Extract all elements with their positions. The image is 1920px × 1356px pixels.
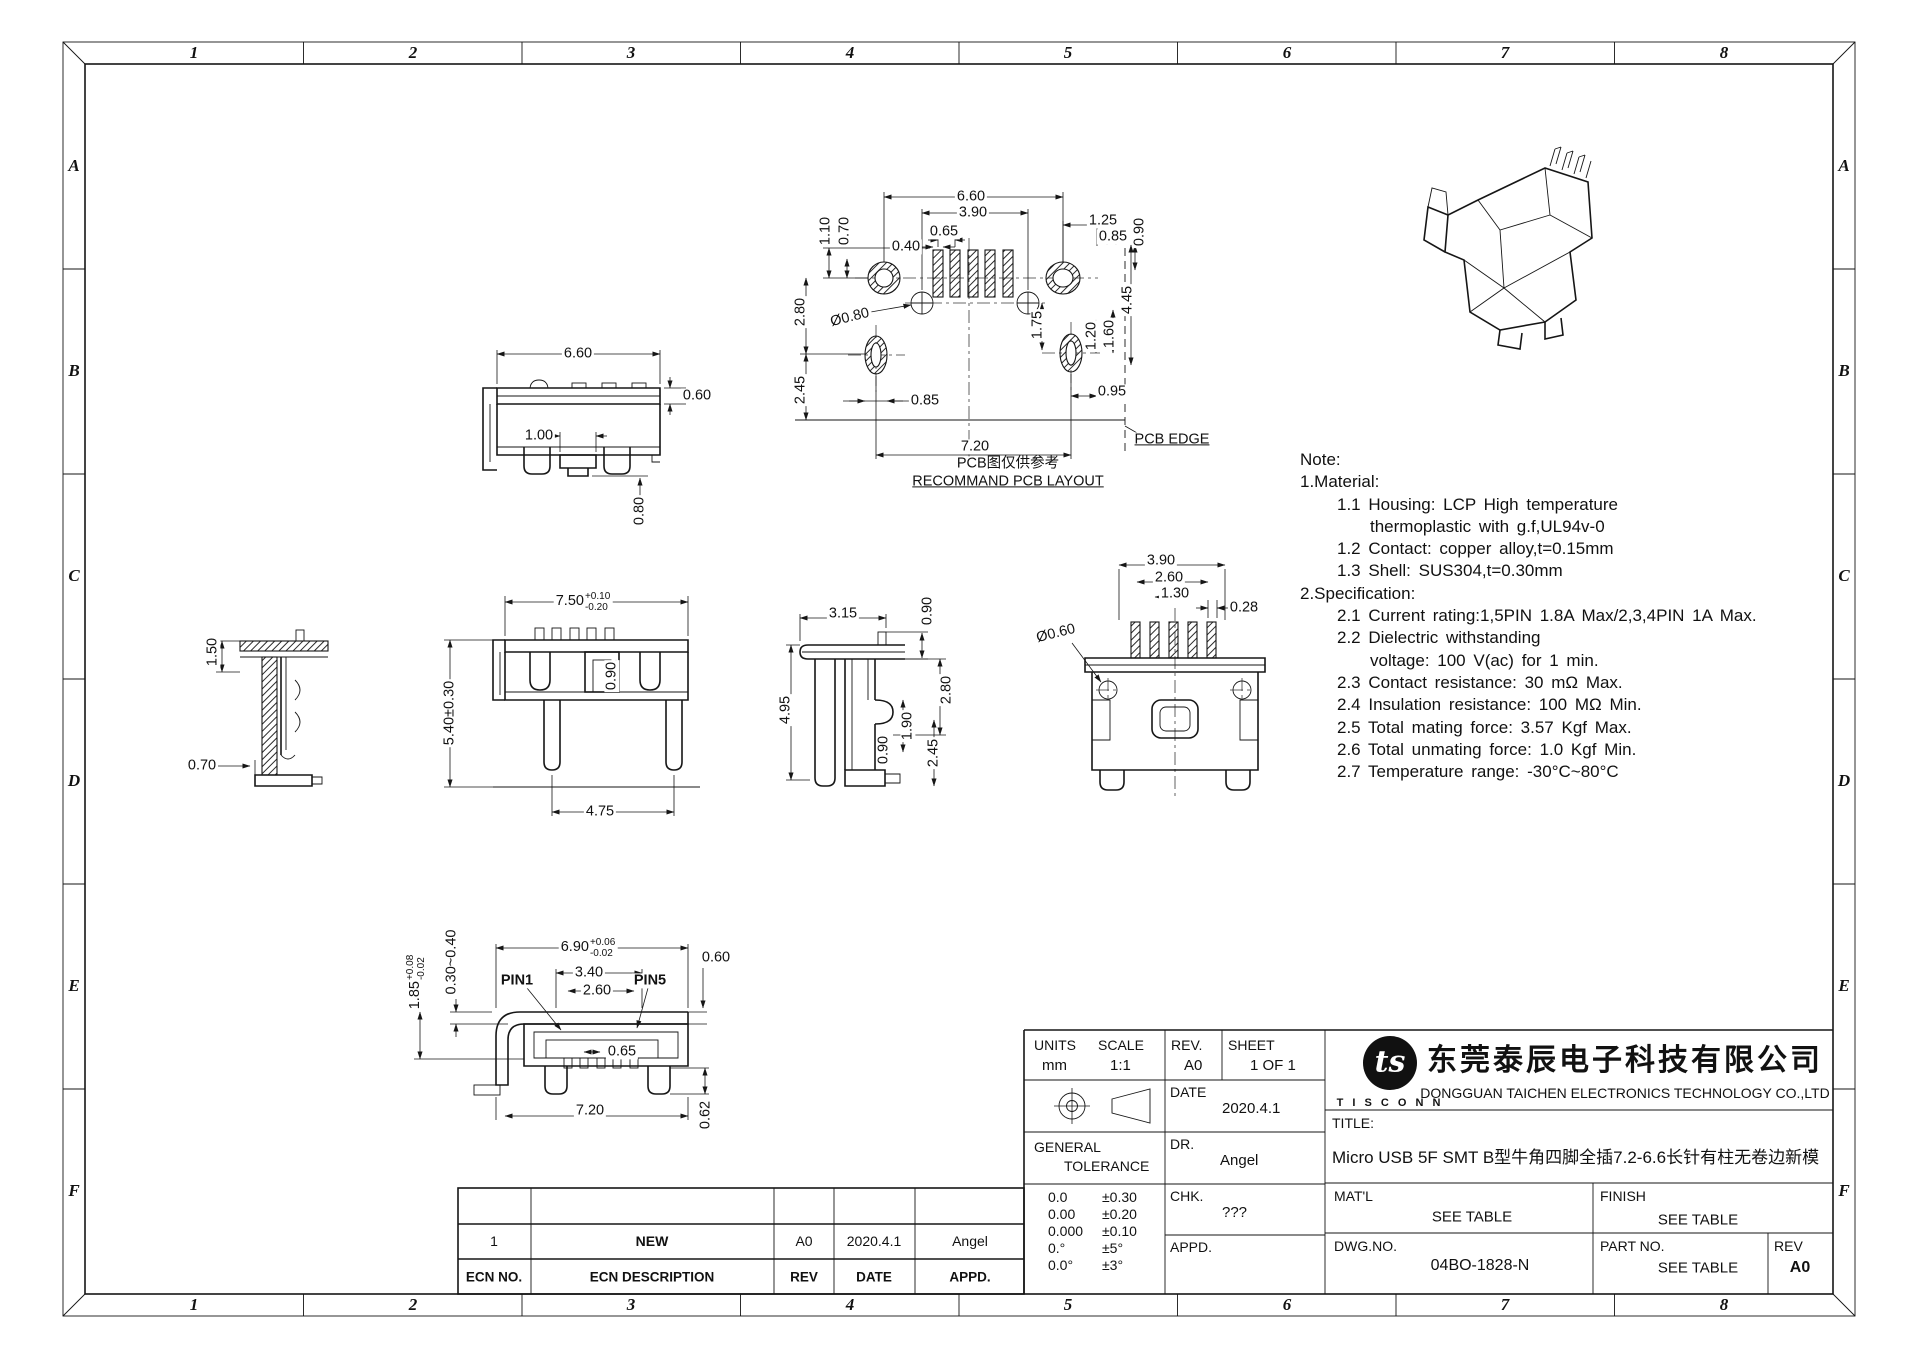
note-line: 1.2 Contact: copper alloy,t=0.15mm [1337,538,1757,560]
ecn-header: DATE [856,1270,892,1285]
dim-label: 3.15 [827,606,859,621]
dim-label: 7.20 [574,1103,606,1118]
note-line: 1.Material: [1300,471,1757,493]
dim-label: 3.40 [573,965,605,980]
pcb-edge-label: PCB EDGE [1133,432,1212,447]
tolerance-value: 0.00 [1048,1206,1075,1222]
title-label: TITLE: [1332,1115,1374,1131]
zone-row: E [68,976,79,996]
view-side-left [216,630,328,786]
view-side-mid [786,614,946,786]
zone-row: A [68,156,79,176]
note-line: 2.3 Contact resistance: 30 mΩ Max. [1337,672,1757,694]
dim-label: 0.70 [186,758,218,773]
ecn-header: ECN DESCRIPTION [590,1270,715,1285]
dim-label: 4.75 [584,804,616,819]
dim-label: 0.90 [920,595,935,627]
ecn-header: REV [790,1270,818,1285]
dim-label: 1.60 [1102,318,1117,350]
general-tolerance-label: GENERAL [1034,1139,1101,1155]
note-line: 2.5 Total mating force: 3.57 Kgf Max. [1337,717,1757,739]
dim-label: 0.90 [604,660,619,692]
ecn-header: APPD. [949,1270,990,1285]
dim-label: 0.65 [928,224,960,239]
tolerance-value: ±0.30 [1102,1189,1137,1205]
ecn-cell: 1 [490,1233,498,1249]
zone-col: 8 [1720,1295,1729,1315]
note-line: 2.2 Dielectric withstanding [1337,627,1757,649]
zone-col: 7 [1501,43,1510,63]
note-line: 2.1 Current rating:1,5PIN 1.8A Max/2,3,4… [1337,605,1757,627]
zone-col: 6 [1283,43,1292,63]
dim-label: 2.60 [581,983,613,998]
zone-row: D [1838,771,1850,791]
ecn-cell: NEW [636,1233,669,1249]
dwg-no-value: 04BO-1828-N [1431,1257,1530,1275]
zone-col: 2 [409,1295,418,1315]
dim-label: 1.10 [818,215,833,247]
note-line: 1.3 Shell: SUS304,t=0.30mm [1337,560,1757,582]
rev-value: A0 [1184,1057,1202,1074]
dim-label: 0.60 [681,388,713,403]
date-value: 2020.4.1 [1222,1100,1280,1117]
sheet-label: SHEET [1228,1037,1275,1053]
zone-row: C [68,566,79,586]
part-no-value: SEE TABLE [1658,1260,1738,1277]
company-name-en: DONGGUAN TAICHEN ELECTRONICS TECHNOLOGY … [1420,1085,1829,1101]
zone-col: 7 [1501,1295,1510,1315]
tolerance-value: 0.0 [1048,1189,1067,1205]
dim-label: 1.30 [1159,586,1191,601]
dim-label: 6.60 [562,346,594,361]
zone-col: 3 [627,43,636,63]
note-line: thermoplastic with g.f,UL94v-0 [1370,516,1757,538]
dwg-no-label: DWG.NO. [1334,1238,1397,1254]
dim-label: 1.50 [205,636,220,668]
matl-label: MAT'L [1334,1188,1373,1204]
company-name-cn: 东莞泰辰电子科技有限公司 [1427,1035,1823,1079]
units-label: UNITS [1034,1037,1076,1053]
tolerance-value: ±5° [1102,1240,1123,1256]
dim-label: 6.60 [955,189,987,204]
zone-col: 8 [1720,43,1729,63]
dim-label: 0.90 [1132,216,1147,248]
pin5-label: PIN5 [632,973,668,988]
dim-label: 0.95 [1096,384,1128,399]
dim-label: 0.30~0.40 [444,928,459,997]
view-front-mid [444,596,700,816]
zone-row: B [1838,361,1849,381]
dim-label: 2.80 [793,296,808,328]
units-value: mm [1042,1057,1067,1074]
dim-label: 1.75 [1030,309,1045,341]
zone-col: 2 [409,43,418,63]
dim-label: 0.70 [837,215,852,247]
ecn-header: ECN NO. [466,1270,522,1285]
drawing-title: Micro USB 5F SMT B型牛角四脚全插7.2-6.6长针有柱无卷边新… [1332,1143,1819,1168]
notes-block: Note: 1.Material: 1.1 Housing: LCP High … [1300,449,1757,783]
dr-label: DR. [1170,1136,1194,1152]
dim-label: 0.65 [606,1044,638,1059]
scale-label: SCALE [1098,1037,1144,1053]
zone-col: 4 [846,1295,855,1315]
finish-value: SEE TABLE [1658,1212,1738,1229]
scale-value: 1:1 [1110,1057,1131,1074]
dim-label: 1.25 [1087,213,1119,228]
rev-label: REV. [1171,1037,1202,1053]
note-line: voltage: 100 V(ac) for 1 min. [1370,650,1757,672]
dim-label: 7.20 [959,439,991,454]
zone-row: F [1838,1181,1849,1201]
dim-label: 2.60 [1153,570,1185,585]
dim-label: 4.95 [778,694,793,726]
tolerance-value: ±0.10 [1102,1223,1137,1239]
dim-label: 0.85 [1097,229,1129,244]
zone-col: 3 [627,1295,636,1315]
zone-col: 6 [1283,1295,1292,1315]
dim-label: 0.62 [698,1099,713,1131]
zone-row: A [1838,156,1849,176]
view-isometric [1424,147,1592,349]
dim-label: 1.85+0.08-0.02 [405,953,427,1012]
dim-label: 1.90 [900,710,915,742]
ecn-cell: 2020.4.1 [847,1233,902,1249]
dim-label: 1.00 [523,428,555,443]
rev2-value: A0 [1790,1259,1810,1277]
pin1-label: PIN1 [499,973,535,988]
logo-ts-monogram: ts [1375,1045,1406,1080]
zone-col: 4 [846,43,855,63]
dim-label: 4.45 [1120,284,1135,316]
ecn-cell: Angel [952,1233,988,1249]
ecn-table-lines [458,1188,1024,1294]
note-line: 2.4 Insulation resistance: 100 MΩ Min. [1337,694,1757,716]
dr-value: Angel [1220,1152,1258,1169]
part-no-label: PART NO. [1600,1238,1665,1254]
tolerance-value: 0.000 [1048,1223,1083,1239]
tolerance-value: ±3° [1102,1257,1123,1273]
dim-label: 2.45 [926,737,941,769]
dim-label: 0.60 [700,950,732,965]
dim-label: 0.85 [909,393,941,408]
zone-col: 5 [1064,43,1073,63]
note-line: 2.6 Total unmating force: 1.0 Kgf Min. [1337,739,1757,761]
zone-col: 5 [1064,1295,1073,1315]
tolerance-value: 0.0° [1048,1257,1073,1273]
zone-row: C [1838,566,1849,586]
dim-label: 3.90 [1145,553,1177,568]
appd-label: APPD. [1170,1239,1212,1255]
finish-label: FINISH [1600,1188,1646,1204]
dim-label: 0.80 [632,495,647,527]
rev2-label: REV [1774,1238,1803,1254]
date-label: DATE [1170,1084,1206,1100]
sheet-value: 1 OF 1 [1250,1057,1296,1074]
view-front-top [483,350,686,498]
general-tolerance-label: TOLERANCE [1064,1158,1149,1174]
note-line: 2.7 Temperature range: -30°C~80°C [1337,761,1757,783]
chk-value: ??? [1222,1204,1247,1221]
dim-label: 6.90+0.06-0.02 [559,937,618,959]
ecn-cell: A0 [795,1233,812,1249]
dim-label: 0.28 [1228,600,1260,615]
dim-label: 1.20 [1084,320,1099,352]
chk-label: CHK. [1170,1188,1203,1204]
dim-label: 2.45 [793,374,808,406]
matl-value: SEE TABLE [1432,1209,1512,1226]
zone-row: F [68,1181,79,1201]
note-line: 1.1 Housing: LCP High temperature [1337,494,1757,516]
dim-label: 0.90 [876,734,891,766]
zone-col: 1 [190,1295,199,1315]
zone-col: 1 [190,43,199,63]
drawing-sheet: 1 2 3 4 5 6 7 8 1 2 3 4 5 6 7 8 A B C D … [0,0,1920,1356]
tolerance-value: 0.° [1048,1240,1065,1256]
pcb-caption-en: RECOMMAND PCB LAYOUT [910,474,1105,489]
notes-heading: Note: [1300,449,1757,471]
dim-label: 2.80 [939,674,954,706]
dim-label: 7.50+0.10-0.20 [554,591,613,613]
pcb-caption-cn: PCB图仅供参考 [955,456,1061,471]
dim-label: 5.40±0.30 [442,679,457,747]
dim-label: 3.90 [957,205,989,220]
zone-row: D [68,771,80,791]
zone-row: B [68,361,79,381]
tolerance-value: ±0.20 [1102,1206,1137,1222]
note-line: 2.Specification: [1300,583,1757,605]
dim-label: 0.40 [890,239,922,254]
zone-row: E [1838,976,1849,996]
